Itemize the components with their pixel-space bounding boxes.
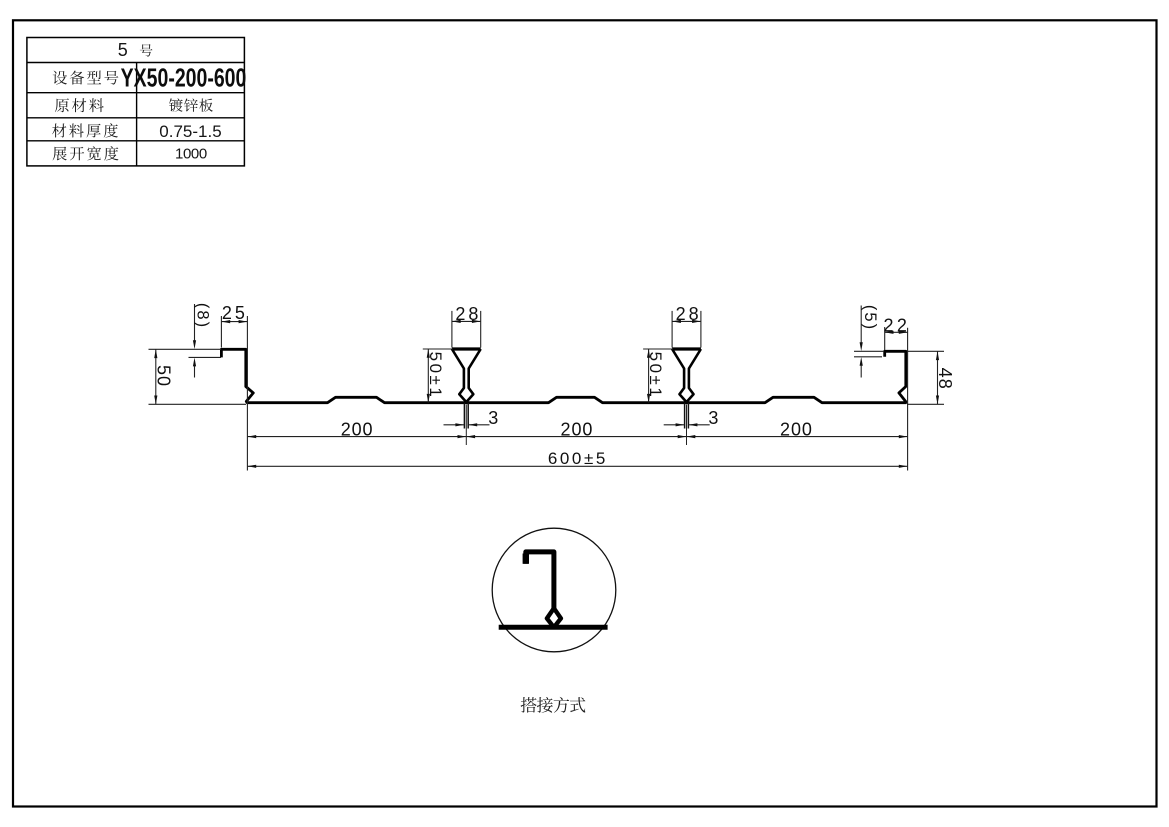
svg-text:5: 5 <box>118 40 128 60</box>
svg-text:200: 200 <box>780 419 813 439</box>
svg-text:200: 200 <box>561 419 594 439</box>
svg-text:50: 50 <box>153 365 173 387</box>
svg-text:YX50-200-600: YX50-200-600 <box>121 63 247 92</box>
svg-text:50±1: 50±1 <box>426 352 445 400</box>
svg-text:3: 3 <box>708 408 718 428</box>
svg-text:28: 28 <box>455 304 481 324</box>
svg-text:0.75-1.5: 0.75-1.5 <box>159 122 221 141</box>
svg-text:200: 200 <box>341 419 374 439</box>
svg-text:28: 28 <box>676 304 702 324</box>
svg-text:1000: 1000 <box>175 146 207 163</box>
svg-text:(8): (8) <box>194 303 212 329</box>
svg-text:25: 25 <box>222 303 248 323</box>
svg-text:3: 3 <box>488 408 498 428</box>
svg-text:50±1: 50±1 <box>646 352 665 400</box>
svg-text:(5): (5) <box>861 305 879 331</box>
svg-text:48: 48 <box>935 368 955 390</box>
svg-text:600±5: 600±5 <box>548 449 608 468</box>
svg-text:22: 22 <box>883 316 910 336</box>
